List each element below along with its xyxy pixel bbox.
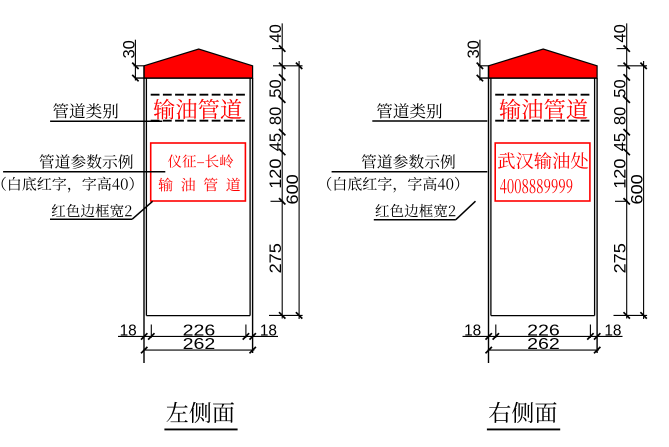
svg-text:80: 80 — [612, 107, 630, 125]
svg-text:40: 40 — [267, 24, 285, 42]
svg-text:50: 50 — [267, 79, 285, 97]
svg-text:45: 45 — [612, 133, 630, 151]
svg-text:18: 18 — [260, 322, 277, 339]
svg-text:275: 275 — [266, 243, 285, 273]
svg-text:18: 18 — [120, 322, 137, 339]
svg-text:18: 18 — [604, 322, 621, 339]
svg-text:262: 262 — [527, 335, 560, 352]
svg-text:262: 262 — [183, 335, 216, 352]
svg-text:30: 30 — [465, 40, 483, 58]
svg-text:600: 600 — [627, 174, 646, 204]
svg-text:40: 40 — [612, 24, 630, 42]
svg-text:18: 18 — [464, 322, 481, 339]
svg-text:30: 30 — [120, 40, 138, 58]
svg-text:80: 80 — [267, 107, 285, 125]
svg-text:50: 50 — [612, 79, 630, 97]
svg-text:600: 600 — [283, 174, 302, 204]
svg-text:45: 45 — [267, 133, 285, 151]
svg-text:275: 275 — [610, 243, 629, 273]
